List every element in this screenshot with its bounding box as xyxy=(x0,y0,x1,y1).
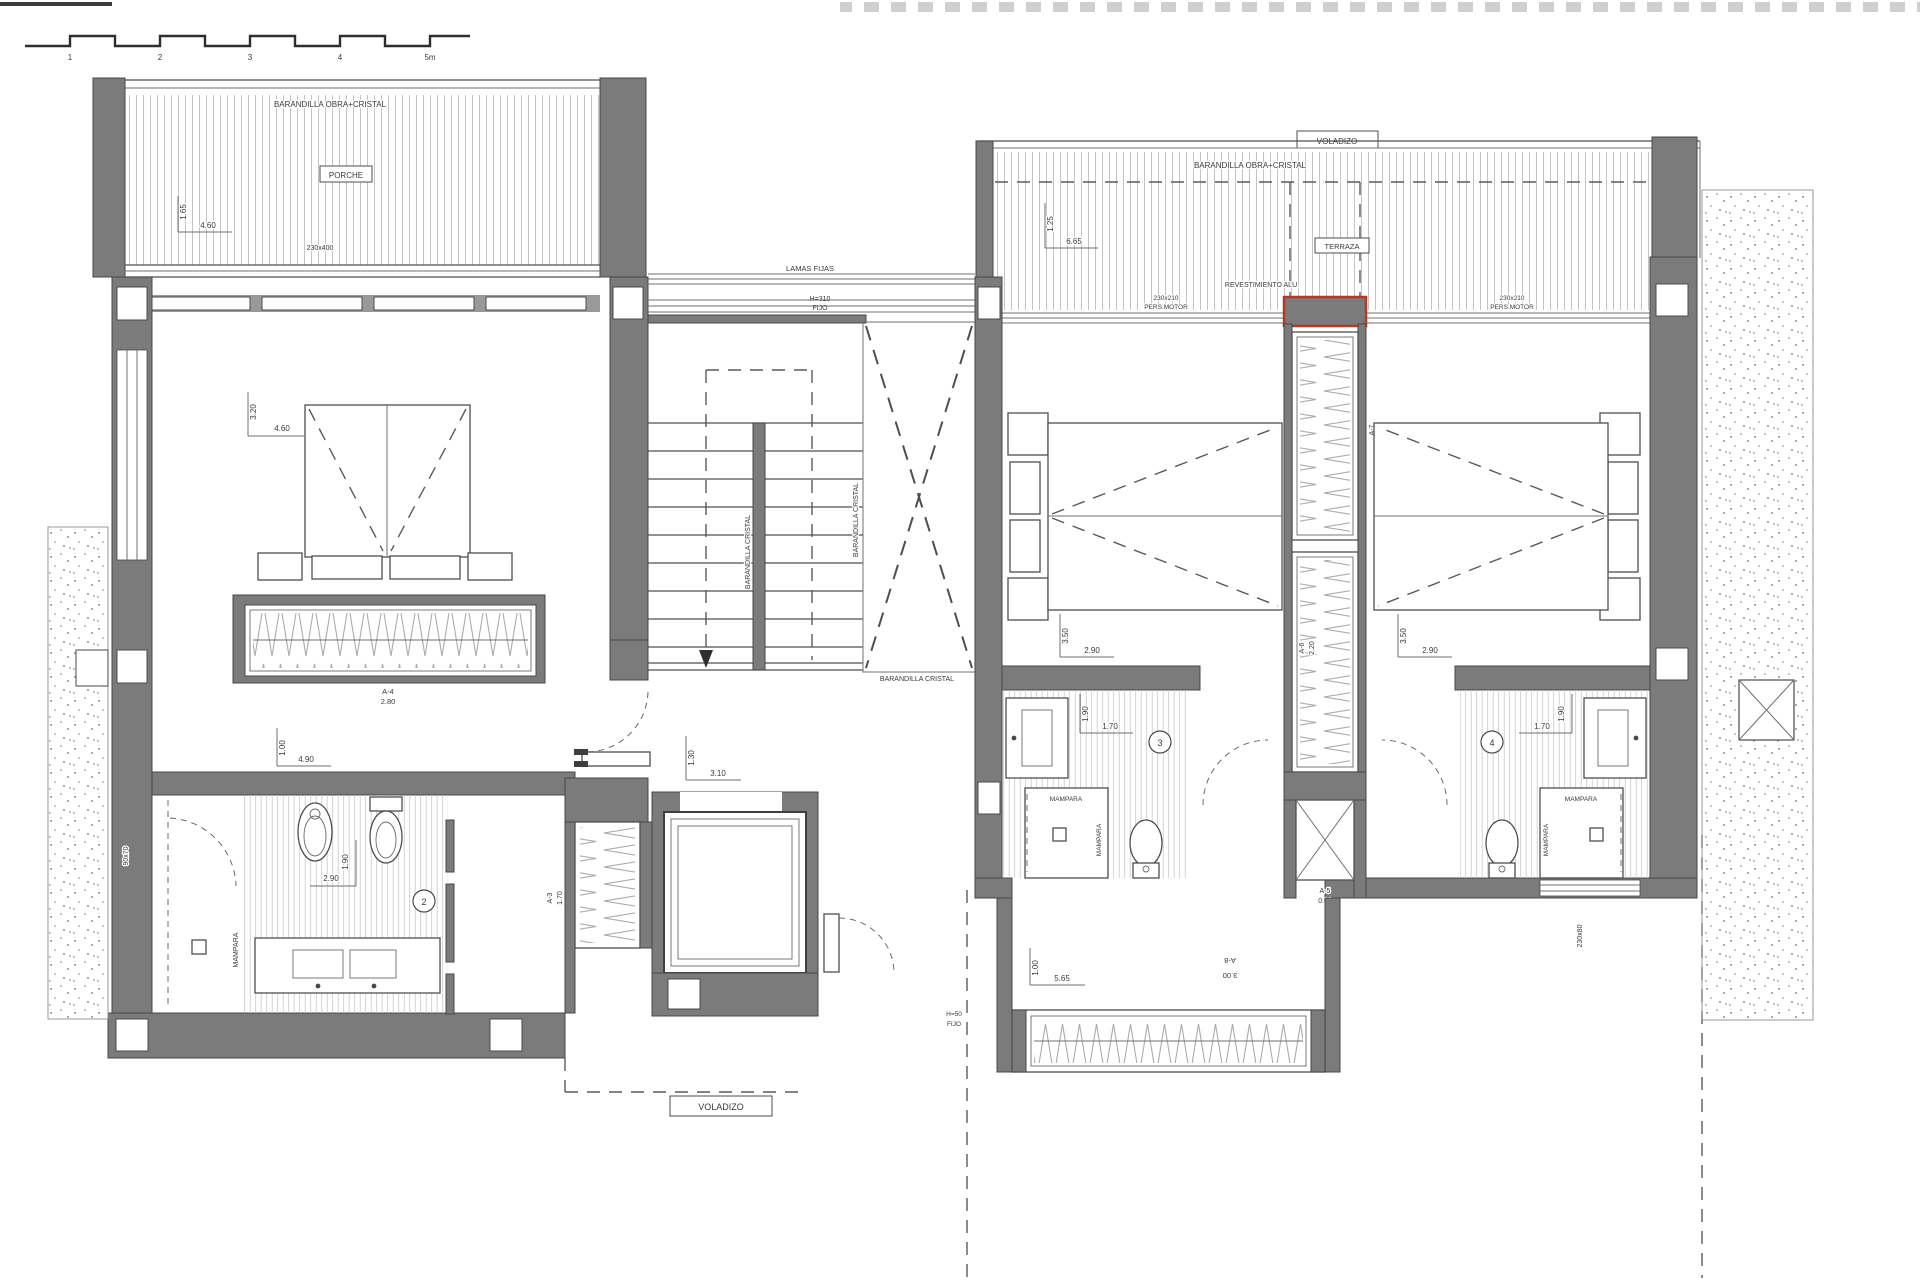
nightstand xyxy=(258,553,302,580)
stairs: BARANDILLA CRISTAL BARANDILLA CRISTAL xyxy=(648,370,863,670)
shower2-drain xyxy=(192,940,206,954)
wardrobe-a4: A-4 2.80 xyxy=(233,595,545,706)
stair-rail-label-c: BARANDILLA CRISTAL xyxy=(880,676,954,683)
drain xyxy=(1053,828,1066,841)
stair-stringer xyxy=(753,423,765,670)
bath2-number: 2 xyxy=(421,897,426,907)
window4-type: PERS.MOTOR xyxy=(1490,304,1534,311)
cladding-label: REVESTIMIENTO ALU. xyxy=(1225,282,1299,289)
vanity-4 xyxy=(1584,698,1646,778)
boundary-line-left xyxy=(0,2,112,6)
wardrobe-a4-width: 2.80 xyxy=(381,697,396,706)
wardrobe-a4-code: A-4 xyxy=(382,687,394,696)
terrace-dim-depth: 1.25 xyxy=(1046,216,1055,232)
bath3-dim-width: 1.70 xyxy=(1102,722,1118,731)
mampara-glass xyxy=(446,884,454,962)
terrace-dim-width: 6.65 xyxy=(1066,237,1082,246)
south-fijo-height: H=50 xyxy=(946,1011,962,1018)
bath2-dim-width: 2.90 xyxy=(323,874,339,883)
bath-4: 1.90 1.70 4 MAMPARA MAMPARA 230x80 xyxy=(1460,690,1648,947)
nightstand xyxy=(1008,413,1048,455)
window-a8-code: A-8 xyxy=(1224,956,1236,965)
porch-dim-width: 4.60 xyxy=(200,221,216,230)
bath4-dim-width: 1.70 xyxy=(1534,722,1550,731)
voladizo-south: VOLADIZO xyxy=(565,1058,800,1116)
floor-plan-drawing: 1 2 3 4 5m BARANDILLA OBRA+CRISTAL PORCH… xyxy=(0,0,1920,1280)
master-bedroom: 3.20 4.60 A-4 2.80 1.00 4.90 xyxy=(233,392,545,766)
bedroom3-dim-depth: 3.50 xyxy=(1061,628,1070,644)
window-a8 xyxy=(1012,1010,1325,1072)
window-a8-width: 3.00 xyxy=(1223,971,1238,980)
shower-3: MAMPARA MAMPARA xyxy=(1025,788,1108,878)
porch-name-label: PORCHE xyxy=(329,171,363,180)
master-dim-depth: 3.20 xyxy=(249,404,258,420)
pass-dim-depth: 1.00 xyxy=(278,740,287,756)
south-dim-width: 5.65 xyxy=(1054,974,1070,983)
terrace: VOLADIZO BARANDILLA OBRA+CRISTAL 1.25 6.… xyxy=(976,131,1700,326)
master-bed xyxy=(258,405,512,580)
bath3-mampara-top: MAMPARA xyxy=(1050,796,1083,803)
shower2-size-label: 90x70 xyxy=(123,846,130,865)
bath2-dim-depth: 1.90 xyxy=(341,854,350,870)
scale-tick-2: 2 xyxy=(158,53,163,62)
pillow xyxy=(1608,462,1638,514)
scale-tick-5: 5m xyxy=(424,53,435,62)
drain xyxy=(1590,828,1603,841)
vanity-3 xyxy=(1006,698,1068,778)
bath3-dim-depth: 1.90 xyxy=(1081,706,1090,722)
closet-a7: A-7 2.20 xyxy=(1292,332,1386,540)
bedroom-4: 3.50 2.90 xyxy=(1374,413,1640,657)
floor-plan-page: 1 2 3 4 5m BARANDILLA OBRA+CRISTAL PORCH… xyxy=(0,0,1920,1280)
boundary-ticks xyxy=(840,0,1920,14)
toilet-4 xyxy=(1486,820,1518,878)
right-east-wall xyxy=(1650,257,1697,898)
mampara-glass xyxy=(446,820,454,872)
door-leaf xyxy=(824,914,839,972)
closet-a3-width: 1.70 xyxy=(557,891,564,905)
closet-a6: A-6 2.20 xyxy=(1292,552,1358,772)
scale-tick-3: 3 xyxy=(248,53,253,62)
sill xyxy=(648,315,866,323)
shaft-a5-code: A-5 xyxy=(1320,888,1331,895)
door-swing xyxy=(1203,740,1268,805)
porch-railing-label: BARANDILLA OBRA+CRISTAL xyxy=(274,100,387,109)
south-window-230x80 xyxy=(1540,880,1640,896)
bath4-mampara-top: MAMPARA xyxy=(1565,796,1598,803)
shower2-door-swing xyxy=(170,818,236,886)
bath-2: MAMPARA 1.90 2.90 2 xyxy=(168,795,454,1014)
north-facade-glazing: LAMAS FIJAS H=310 FIJO xyxy=(648,264,975,323)
terrace-name-label: TERRAZA xyxy=(1324,242,1359,251)
door-swing xyxy=(839,918,894,973)
porch-pillar-left xyxy=(93,78,125,277)
bath4-number: 4 xyxy=(1489,738,1494,748)
bath4-window-size: 230x80 xyxy=(1577,924,1584,947)
east-terrace xyxy=(1702,190,1813,1020)
south-bump: H=50 FIJO 1.00 5.65 A-8 3.00 xyxy=(946,898,1340,1072)
bath3-north-wall xyxy=(1002,666,1200,690)
bath3-mampara-side: MAMPARA xyxy=(1096,823,1103,856)
bath4-north-wall xyxy=(1455,666,1650,690)
stair-direction-arrow xyxy=(699,650,713,668)
closet-a6-code: A-6 xyxy=(1299,642,1306,653)
shower-4: MAMPARA MAMPARA xyxy=(1540,788,1623,878)
pillow xyxy=(1010,520,1040,572)
bedroom-3: 3.50 2.90 xyxy=(1008,413,1282,657)
core-strip: A-7 2.20 A-6 2.20 A-5 0.00 xyxy=(1203,324,1447,905)
toilet xyxy=(370,797,402,863)
voladizo-south-label: VOLADIZO xyxy=(698,1102,744,1112)
stair-void: BARANDILLA CRISTAL xyxy=(863,322,975,683)
west-window xyxy=(117,350,147,560)
window3-type: PERS.MOTOR xyxy=(1144,304,1188,311)
bath4-mampara-side: MAMPARA xyxy=(1543,823,1550,856)
stair-rail-label-b: BARANDILLA CRISTAL xyxy=(853,483,860,557)
bath4-dim-depth: 1.90 xyxy=(1557,706,1566,722)
bidet xyxy=(298,803,332,861)
bedroom4-dim-width: 2.90 xyxy=(1422,646,1438,655)
door-jamb xyxy=(610,640,648,680)
mampara-glass xyxy=(446,974,454,1014)
hall: 1.30 3.10 A-3 1.70 xyxy=(547,640,894,1016)
bath3-number: 3 xyxy=(1157,738,1162,748)
south-dim-depth: 1.00 xyxy=(1031,960,1040,976)
nightstand xyxy=(1008,578,1048,620)
hall-dim-width: 3.10 xyxy=(710,769,726,778)
pillow xyxy=(1608,520,1638,572)
bedroom3-dim-width: 2.90 xyxy=(1084,646,1100,655)
master-dim-width: 4.60 xyxy=(274,424,290,433)
bath2-mampara-label: MAMPARA xyxy=(233,932,240,967)
right-south-wall xyxy=(1325,878,1697,898)
terrace-deck xyxy=(993,152,1650,310)
door-swing xyxy=(586,692,648,752)
bath-3: 1.90 1.70 3 MAMPARA MAMPARA xyxy=(1002,690,1190,878)
cladding-red-pier xyxy=(1284,297,1366,326)
hall-dim-depth: 1.30 xyxy=(687,750,696,766)
porch-pillar-right xyxy=(600,78,646,277)
south-fijo-label: FIJO xyxy=(947,1021,961,1028)
porch: BARANDILLA OBRA+CRISTAL PORCHE 1.65 4.60… xyxy=(93,78,646,312)
pillow xyxy=(390,556,460,579)
door-leaf xyxy=(582,752,650,766)
bath2-north-wall xyxy=(152,772,575,795)
stair-rail-label-a: BARANDILLA CRISTAL xyxy=(745,515,752,589)
door-swing xyxy=(1382,740,1447,805)
porch-window-size: 230x400 xyxy=(307,245,334,252)
window3-size: 230x210 xyxy=(1154,295,1179,302)
terrace-wall-left xyxy=(976,141,993,285)
pass-dim-width: 4.90 xyxy=(298,755,314,764)
closet-a3-code: A-3 xyxy=(547,892,554,903)
bedroom4-dim-depth: 3.50 xyxy=(1399,628,1408,644)
elevator xyxy=(652,792,818,1016)
nightstand xyxy=(468,553,512,580)
toilet-3 xyxy=(1130,820,1162,878)
closet-a6-width: 2.20 xyxy=(1309,641,1316,655)
vanity-2 xyxy=(255,938,440,993)
lamas-fijas-label: LAMAS FIJAS xyxy=(786,264,834,273)
terrace-pillar-right xyxy=(1652,137,1697,258)
scale-bar: 1 2 3 4 5m xyxy=(25,36,470,62)
pillow xyxy=(312,556,382,579)
scale-tick-1: 1 xyxy=(68,53,73,62)
closet-a3: A-3 1.70 xyxy=(547,778,656,1013)
pillow xyxy=(1010,462,1040,514)
bed-3 xyxy=(1008,413,1282,620)
scale-tick-4: 4 xyxy=(338,53,343,62)
bed-4 xyxy=(1374,413,1640,620)
window4-size: 230x210 xyxy=(1500,295,1525,302)
porch-dim-depth: 1.65 xyxy=(179,204,188,220)
master-east-wall xyxy=(610,277,648,672)
terrace-railing-label: BARANDILLA OBRA+CRISTAL xyxy=(1194,161,1307,170)
